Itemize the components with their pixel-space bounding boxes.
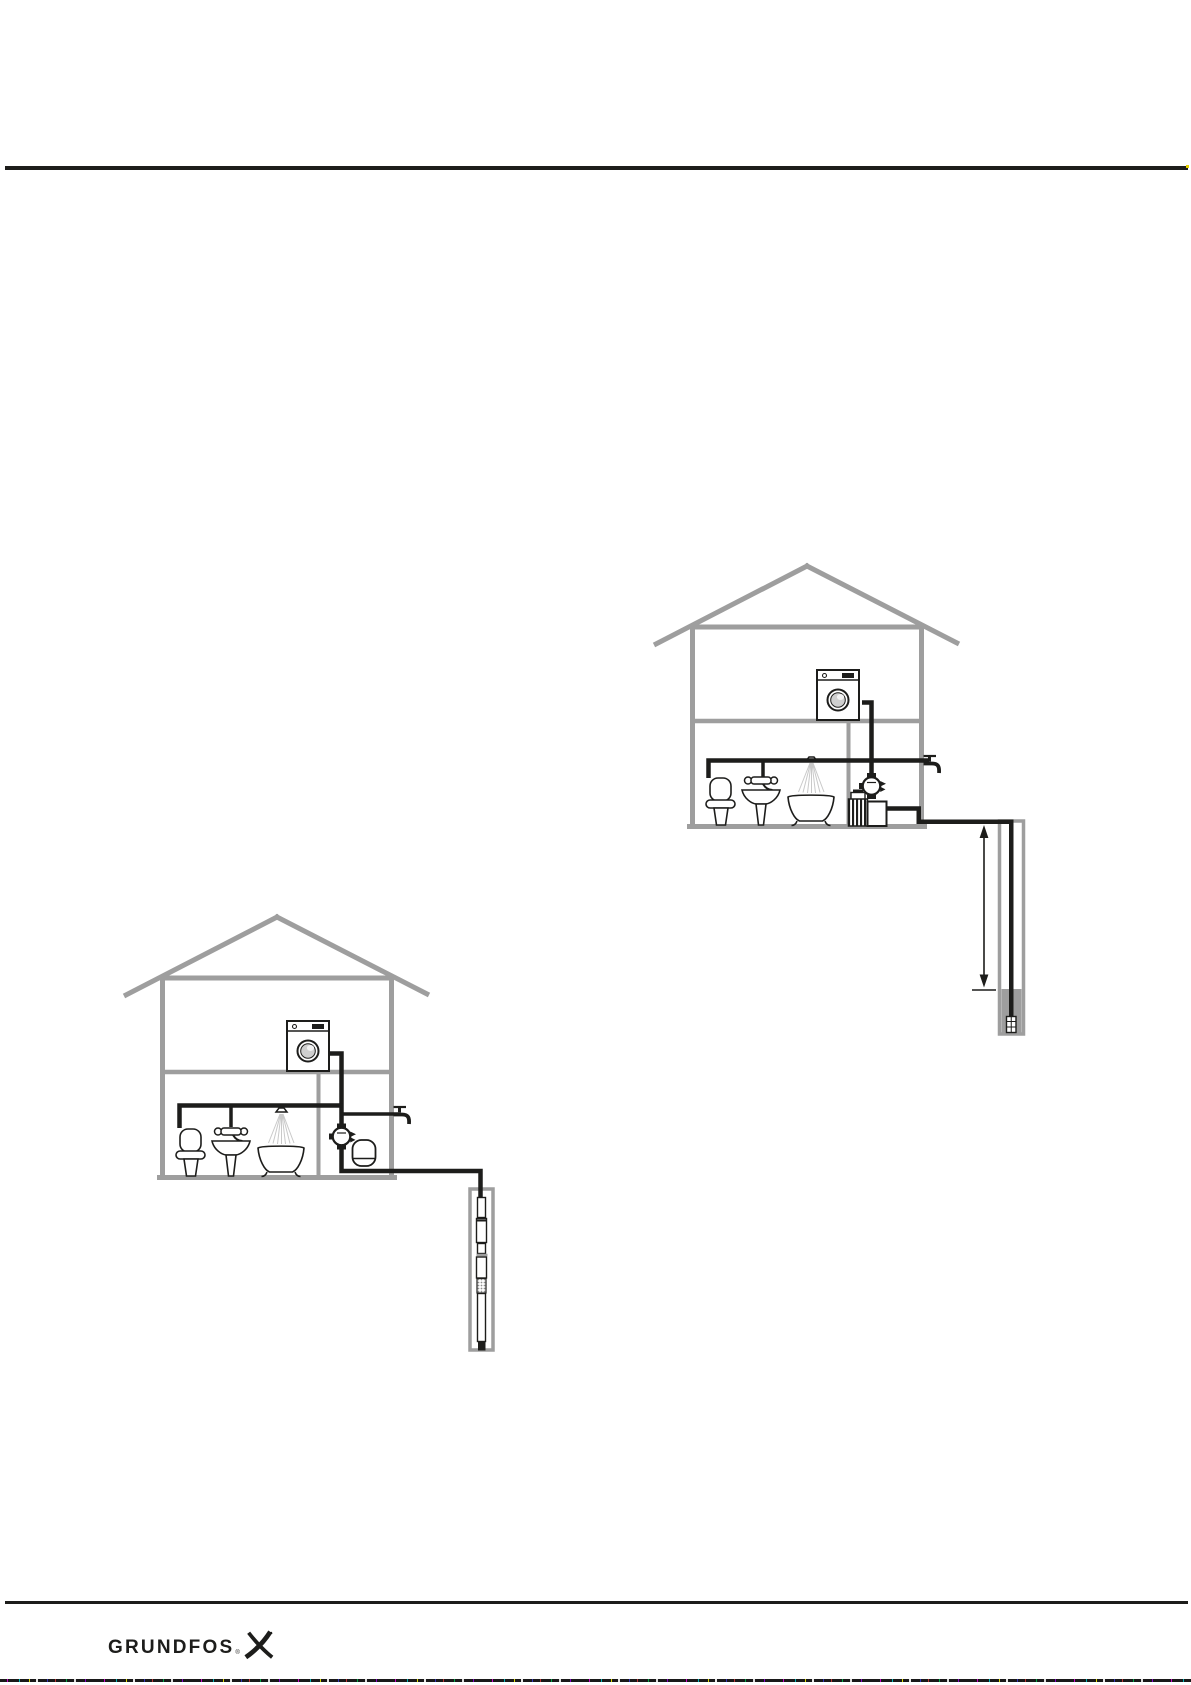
left-installation-figure	[124, 916, 493, 1351]
scan-noise-strip	[0, 1679, 1191, 1682]
right-house	[654, 565, 959, 828]
grundfos-logo: GRUNDFOS ®	[108, 1630, 275, 1657]
pressure-control-icon	[329, 1124, 356, 1150]
grundfos-wordmark: GRUNDFOS	[108, 1638, 234, 1657]
right-piping	[709, 703, 1012, 1017]
grundfos-mark-icon	[243, 1630, 275, 1660]
installation-diagrams	[0, 0, 1191, 1685]
right-installation-figure	[654, 565, 1024, 1034]
borehole-pump-icon	[1007, 1017, 1017, 1033]
left-house	[124, 916, 429, 1179]
bottom-rule	[5, 1601, 1188, 1604]
submersible-pump-icon	[477, 1198, 488, 1351]
pressure-tank-icon	[353, 1140, 376, 1166]
depth-arrow	[972, 825, 996, 990]
document-page: GRUNDFOS ®	[0, 0, 1191, 1685]
registered-trademark: ®	[235, 1650, 239, 1656]
